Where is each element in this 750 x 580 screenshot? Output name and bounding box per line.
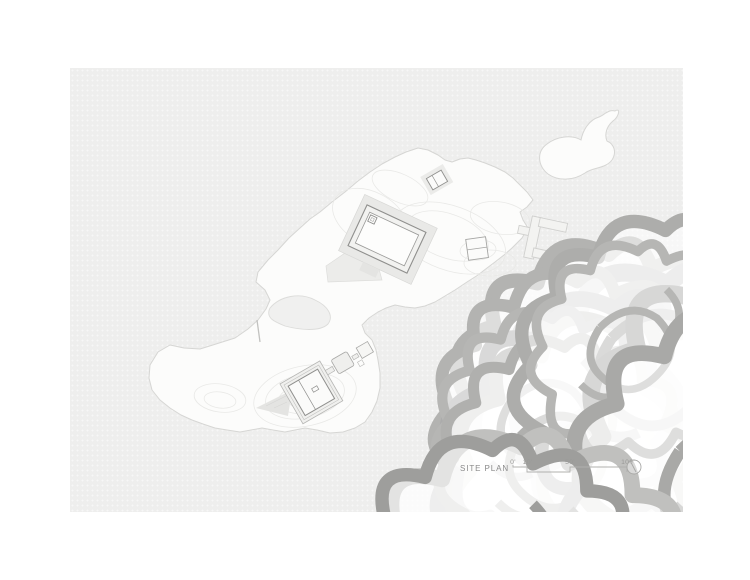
north-arrow-icon <box>627 460 641 474</box>
scale-tick-50: 50' <box>565 459 575 466</box>
utility-structure <box>466 237 489 261</box>
scale-tick-10: 10' <box>523 459 533 466</box>
site-plan-label: SITE PLAN <box>460 464 509 473</box>
scale-tick-0: 0' <box>510 459 516 466</box>
site-plan-drawing: SITE PLAN 0' 10' 50' 100' <box>70 68 683 512</box>
site-plan-canvas: SITE PLAN 0' 10' 50' 100' <box>70 68 683 512</box>
drawing-sheet: SITE PLAN 0' 10' 50' 100' <box>0 0 750 580</box>
secondary-island <box>540 110 619 179</box>
